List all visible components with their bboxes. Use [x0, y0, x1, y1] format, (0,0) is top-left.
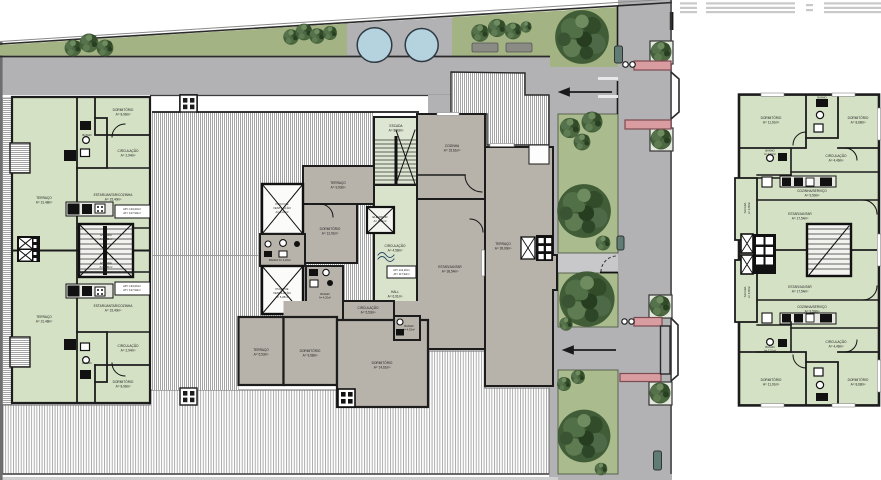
- svg-text:A= 8,68m²: A= 8,68m²: [851, 383, 866, 387]
- svg-text:A= 9,50m²: A= 9,50m²: [805, 310, 820, 314]
- svg-text:ESTAR/JANTAR/COZINHA: ESTAR/JANTAR/COZINHA: [94, 193, 134, 197]
- svg-text:TERRAÇO: TERRAÇO: [36, 315, 52, 319]
- svg-text:A= 8,40m²: A= 8,40m²: [100, 265, 113, 269]
- svg-text:TERRAÇO: TERRAÇO: [495, 242, 511, 246]
- svg-text:A= 15,40m²: A= 15,40m²: [105, 198, 122, 202]
- svg-text:ESTAR/JANTAR/COZINHA: ESTAR/JANTAR/COZINHA: [94, 304, 134, 308]
- svg-text:A= 15,40m²: A= 15,40m²: [105, 309, 122, 313]
- svg-text:A= 8,40m²: A= 8,40m²: [100, 237, 113, 241]
- svg-text:A= 17,54m²: A= 17,54m²: [792, 290, 809, 294]
- svg-text:A= 6,91m²: A= 6,91m²: [388, 295, 403, 299]
- svg-text:DORMITÓRIO: DORMITÓRIO: [113, 107, 134, 112]
- svg-text:BANHO: BANHO: [765, 149, 774, 153]
- svg-text:A= 17,54m²: A= 17,54m²: [792, 217, 809, 221]
- svg-text:A= 3,34m²: A= 3,34m²: [374, 219, 387, 223]
- svg-text:A= 11,91m²: A= 11,91m²: [763, 383, 779, 387]
- svg-text:CIRCULAÇÃO: CIRCULAÇÃO: [118, 343, 139, 348]
- svg-text:A= 4,58m²: A= 4,58m²: [388, 249, 403, 253]
- svg-text:A= 5,28m²: A= 5,28m²: [276, 295, 289, 299]
- svg-text:SACADA: SACADA: [743, 286, 747, 297]
- svg-text:DORMITÓRIO: DORMITÓRIO: [300, 348, 321, 353]
- svg-text:A= 15,61m²: A= 15,61m²: [444, 149, 461, 153]
- svg-text:A= 8,96m²: A= 8,96m²: [116, 385, 131, 389]
- svg-text:AT= 117,90m²: AT= 117,90m²: [393, 272, 409, 276]
- svg-text:A= 8,96m²: A= 8,96m²: [116, 113, 131, 117]
- svg-text:A= 4,20m²: A= 4,20m²: [319, 296, 331, 300]
- svg-text:BANHO: BANHO: [817, 96, 826, 100]
- svg-text:AT= 137,90m²: AT= 137,90m²: [123, 288, 141, 292]
- svg-text:A= 3,01m²: A= 3,01m²: [764, 152, 776, 156]
- svg-text:DORMITÓRIO: DORMITÓRIO: [372, 360, 393, 365]
- svg-text:ESTAR/JANTAR: ESTAR/JANTAR: [438, 265, 462, 269]
- svg-text:BANHO: BANHO: [765, 345, 774, 349]
- svg-text:CIRCULAÇÃO: CIRCULAÇÃO: [826, 153, 847, 158]
- svg-text:A= 5,28m²: A= 5,28m²: [276, 210, 289, 214]
- svg-text:DORMITÓRIO: DORMITÓRIO: [761, 115, 782, 120]
- svg-text:A= 8,68m²: A= 8,68m²: [851, 121, 866, 125]
- svg-text:DORMITÓRIO: DORMITÓRIO: [848, 115, 869, 120]
- svg-text:A= 3,01m²: A= 3,01m²: [764, 348, 776, 352]
- svg-text:AP= 113,20m²: AP= 113,20m²: [393, 268, 410, 272]
- svg-text:A= 12,91m²: A= 12,91m²: [322, 232, 339, 236]
- svg-text:TERRAÇO: TERRAÇO: [253, 348, 269, 352]
- svg-text:A= 3,50m²: A= 3,50m²: [747, 202, 751, 214]
- svg-text:COZINHA: COZINHA: [445, 144, 460, 148]
- svg-text:DORMITÓRIO: DORMITÓRIO: [113, 379, 134, 384]
- svg-text:TERRAÇO: TERRAÇO: [330, 181, 346, 185]
- svg-text:A= 2,94m²: A= 2,94m²: [121, 349, 136, 353]
- svg-text:DORMITÓRIO: DORMITÓRIO: [848, 377, 869, 382]
- svg-text:A= 39,00m²: A= 39,00m²: [495, 247, 512, 251]
- svg-text:BANHO: BANHO: [82, 361, 91, 365]
- svg-text:A= 4,53m²: A= 4,53m²: [403, 328, 415, 332]
- svg-text:CIRCULAÇÃO: CIRCULAÇÃO: [385, 243, 406, 248]
- svg-text:TERRAÇO: TERRAÇO: [36, 196, 52, 200]
- svg-text:BANHO: BANHO: [404, 324, 413, 328]
- svg-text:AT= 137,90m²: AT= 137,90m²: [123, 211, 141, 215]
- svg-text:A= 31,48m²: A= 31,48m²: [36, 201, 53, 205]
- svg-text:A= 3,50m²: A= 3,50m²: [747, 286, 751, 298]
- svg-text:A= 4,46m²: A= 4,46m²: [829, 345, 844, 349]
- svg-text:ESTAR/JANTAR: ESTAR/JANTAR: [788, 212, 812, 216]
- svg-text:A= 9,53m²: A= 9,53m²: [331, 186, 346, 190]
- svg-text:CIRCULAÇÃO: CIRCULAÇÃO: [358, 305, 379, 310]
- svg-text:A= 2,94m²: A= 2,94m²: [121, 154, 136, 158]
- svg-text:A= 9,58m²: A= 9,58m²: [303, 354, 318, 358]
- svg-text:HALL: HALL: [391, 290, 399, 294]
- svg-text:A= 5,53m²: A= 5,53m²: [254, 353, 269, 357]
- svg-text:BANHO: BANHO: [82, 133, 91, 137]
- svg-text:A= 5,53m²: A= 5,53m²: [361, 311, 376, 315]
- svg-text:COZINHA/SERVIÇO: COZINHA/SERVIÇO: [797, 305, 827, 309]
- svg-text:ESCADA: ESCADA: [389, 124, 403, 128]
- svg-text:A= 4,46m²: A= 4,46m²: [829, 159, 844, 163]
- svg-text:COZINHA/SERVIÇO: COZINHA/SERVIÇO: [797, 189, 827, 193]
- svg-text:A= 14,61m²: A= 14,61m²: [374, 366, 391, 370]
- svg-text:A= 8,43m²: A= 8,43m²: [389, 129, 404, 133]
- svg-text:DORMITÓRIO: DORMITÓRIO: [761, 377, 782, 382]
- svg-text:A= 9,50m²: A= 9,50m²: [805, 194, 820, 198]
- svg-text:DORMITÓRIO: DORMITÓRIO: [320, 226, 341, 231]
- svg-text:A= 36,54m²: A= 36,54m²: [442, 270, 459, 274]
- svg-text:BANHO A= 4,20m²: BANHO A= 4,20m²: [269, 258, 291, 262]
- svg-text:CIRCULAÇÃO: CIRCULAÇÃO: [826, 339, 847, 344]
- svg-text:SACADA: SACADA: [743, 202, 747, 213]
- svg-text:A= 11,91m²: A= 11,91m²: [763, 121, 779, 125]
- svg-text:A= 31,48m²: A= 31,48m²: [36, 320, 53, 324]
- svg-text:CIRCULAÇÃO: CIRCULAÇÃO: [118, 148, 139, 153]
- svg-text:BANHO: BANHO: [817, 398, 826, 402]
- svg-text:ESTAR/JANTAR: ESTAR/JANTAR: [788, 285, 812, 289]
- svg-text:BANHO: BANHO: [320, 292, 329, 296]
